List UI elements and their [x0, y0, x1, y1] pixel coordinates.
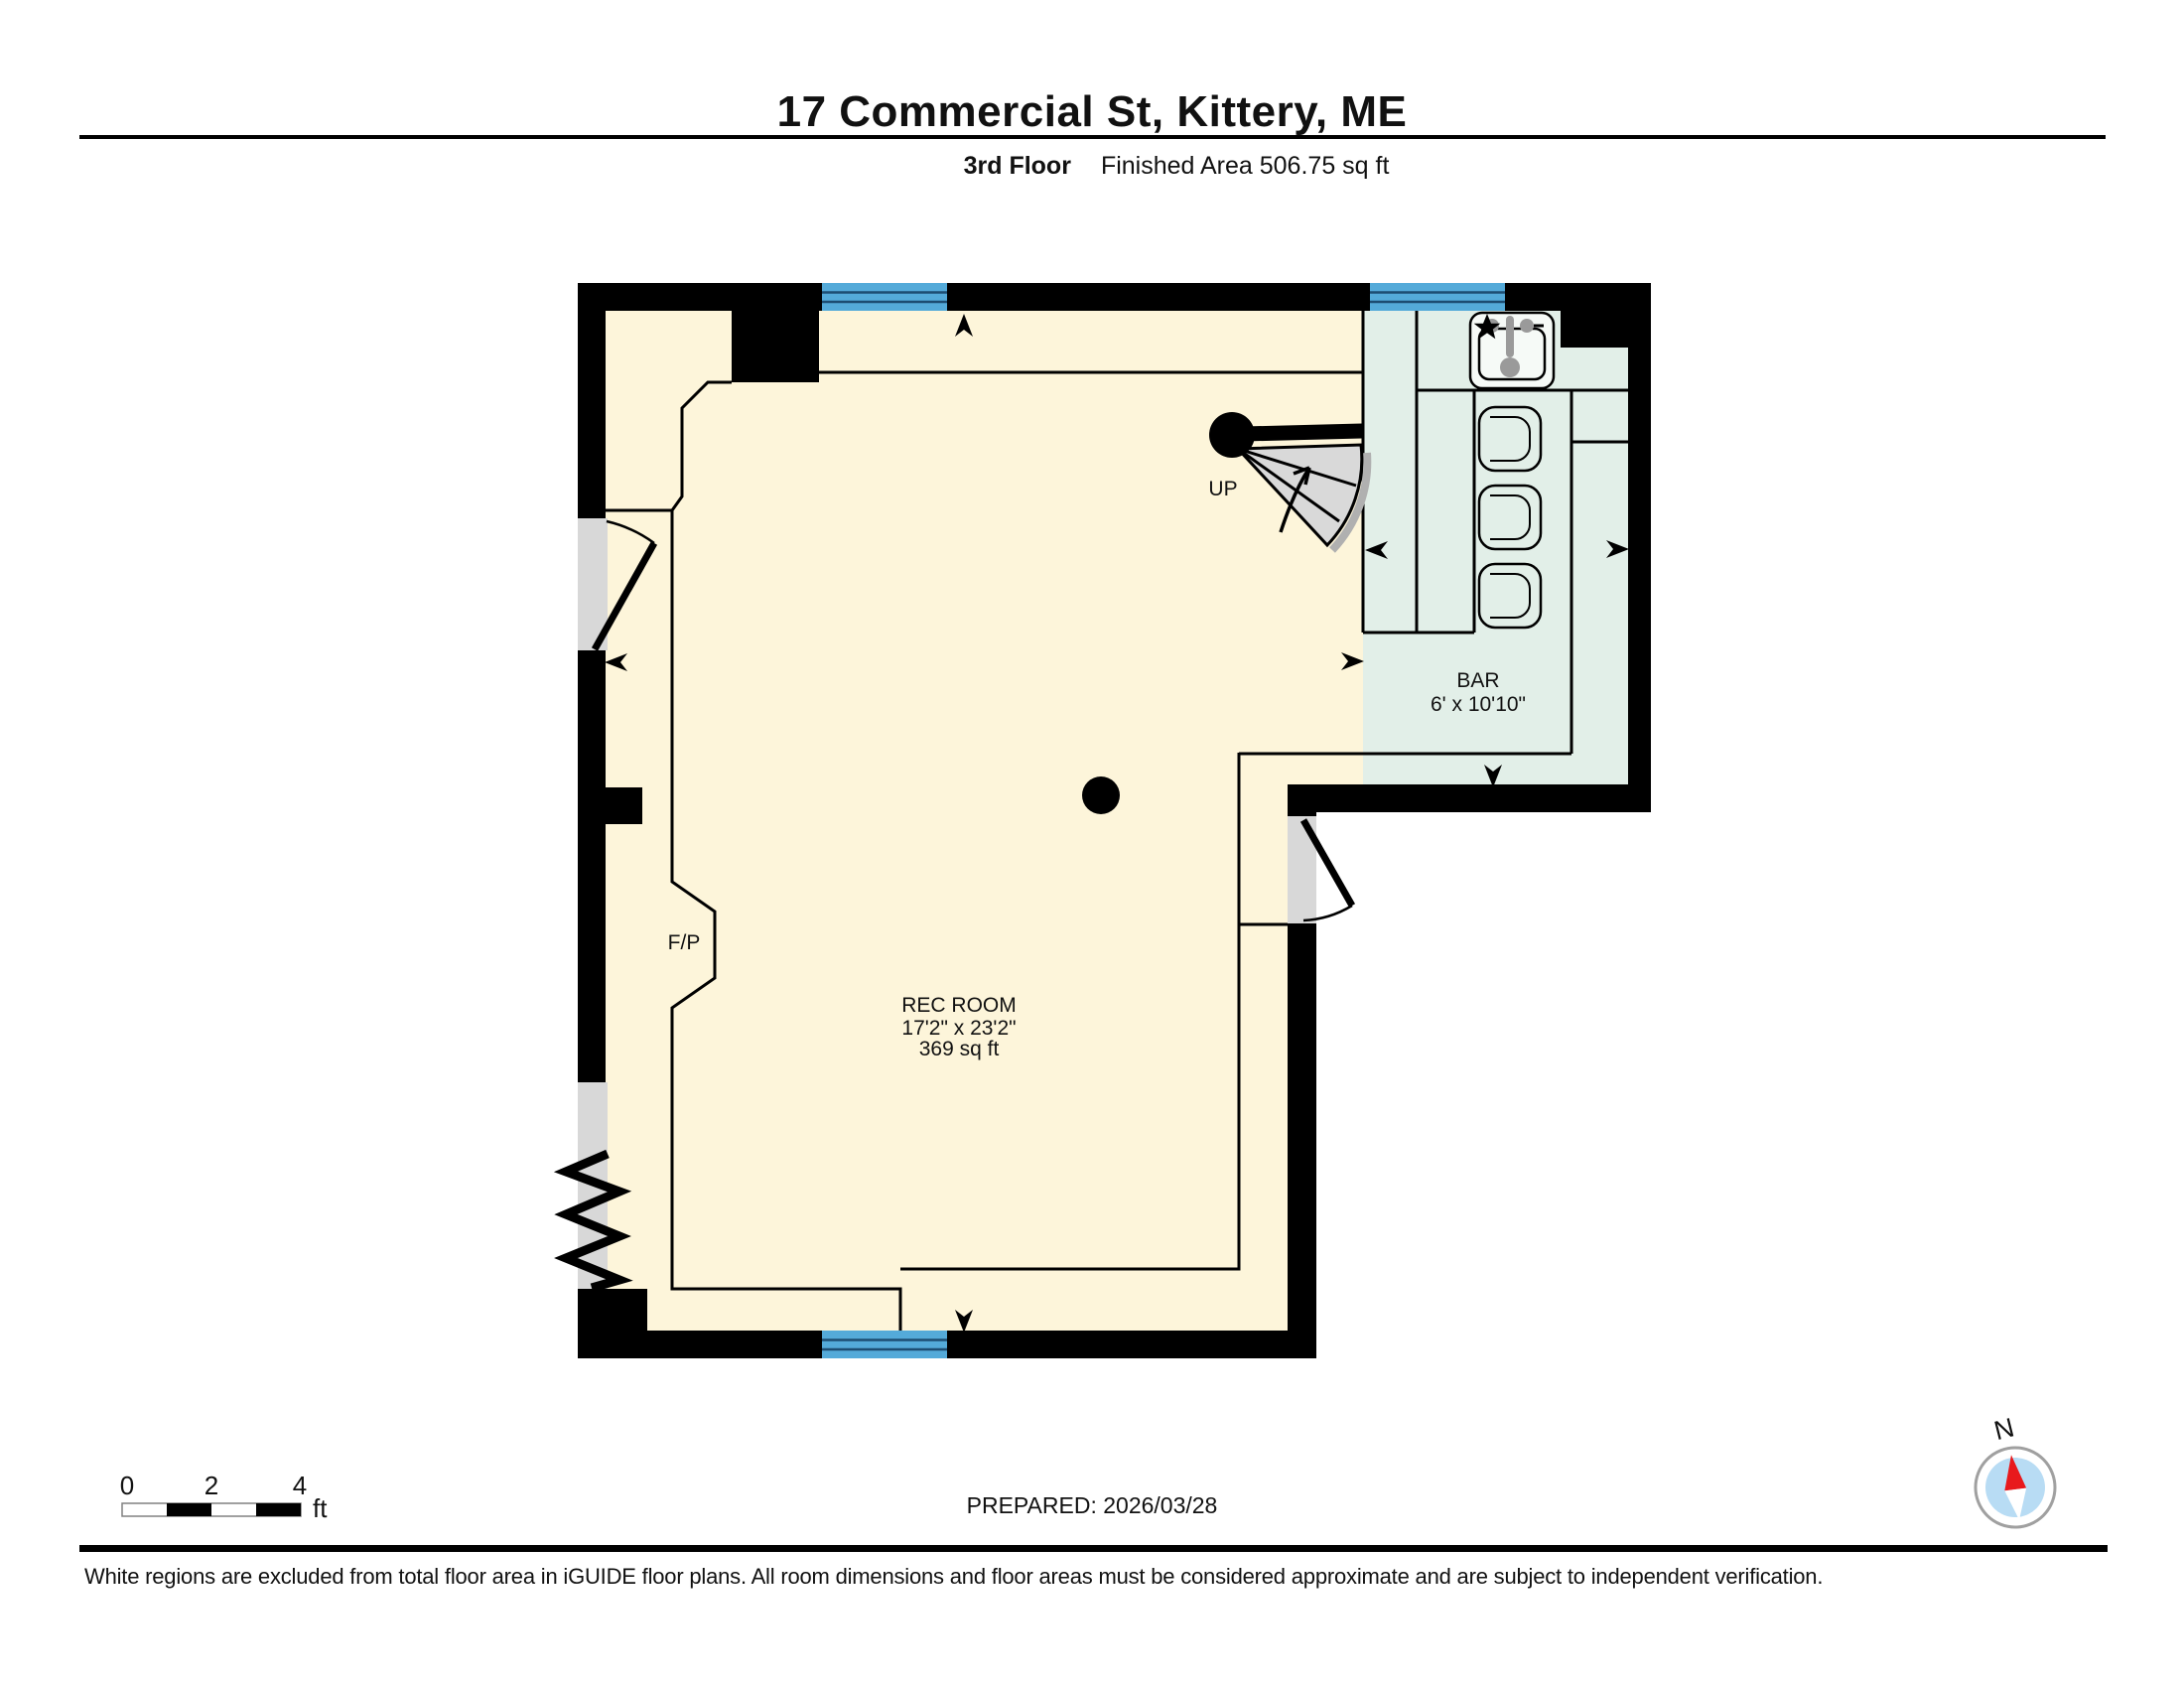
fireplace-label: F/P: [668, 931, 701, 954]
bar-stools: [1479, 407, 1541, 628]
scale-tick-label: 2: [205, 1471, 218, 1500]
compass-north-label: N: [1991, 1412, 2017, 1446]
bar-stool: [1479, 486, 1541, 549]
room-area: 369 sq ft: [919, 1038, 1000, 1060]
scale-tick-label: 4: [293, 1471, 307, 1500]
footer-disclaimer: White regions are excluded from total fl…: [84, 1564, 2129, 1590]
rec-room-floor: [606, 311, 1363, 1331]
scale-tick-label: 0: [120, 1471, 134, 1500]
footer-divider: [79, 1545, 2108, 1552]
window-icon: [822, 283, 947, 311]
room-dimensions: 17'2" x 23'2": [901, 1017, 1016, 1040]
scale-bar: 0 2 4 ft: [120, 1471, 328, 1523]
scale-unit-label: ft: [313, 1493, 328, 1523]
floor-plan: UP F/P REC ROOM 17'2" x 23'2" 369 sq ft …: [0, 0, 2184, 1688]
stairs-label: UP: [1208, 478, 1237, 500]
bar-stool: [1479, 407, 1541, 471]
room-name: BAR: [1456, 669, 1499, 692]
compass-icon: N: [1976, 1412, 2055, 1527]
window-icon: [822, 1331, 947, 1358]
bar-stool: [1479, 564, 1541, 628]
window-icon: [1370, 283, 1505, 311]
room-dimensions: 6' x 10'10": [1431, 693, 1526, 716]
prepared-date: PREPARED: 2026/03/28: [967, 1492, 1218, 1518]
room-name: REC ROOM: [901, 994, 1017, 1017]
camera-point-marker: [1082, 776, 1120, 814]
